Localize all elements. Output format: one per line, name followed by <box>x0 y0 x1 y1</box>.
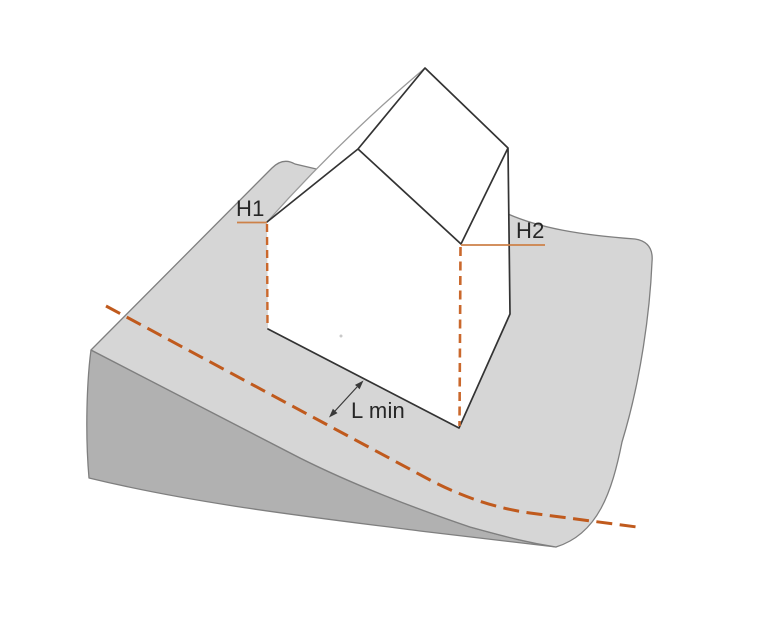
terrain-house-diagram: H1 H2 L min <box>0 0 768 619</box>
h2-label: H2 <box>516 218 545 243</box>
diagram-canvas: H1 H2 L min <box>0 0 768 619</box>
lmin-label: L min <box>351 398 405 423</box>
h1-label: H1 <box>236 196 265 221</box>
wall-speck <box>340 335 343 338</box>
